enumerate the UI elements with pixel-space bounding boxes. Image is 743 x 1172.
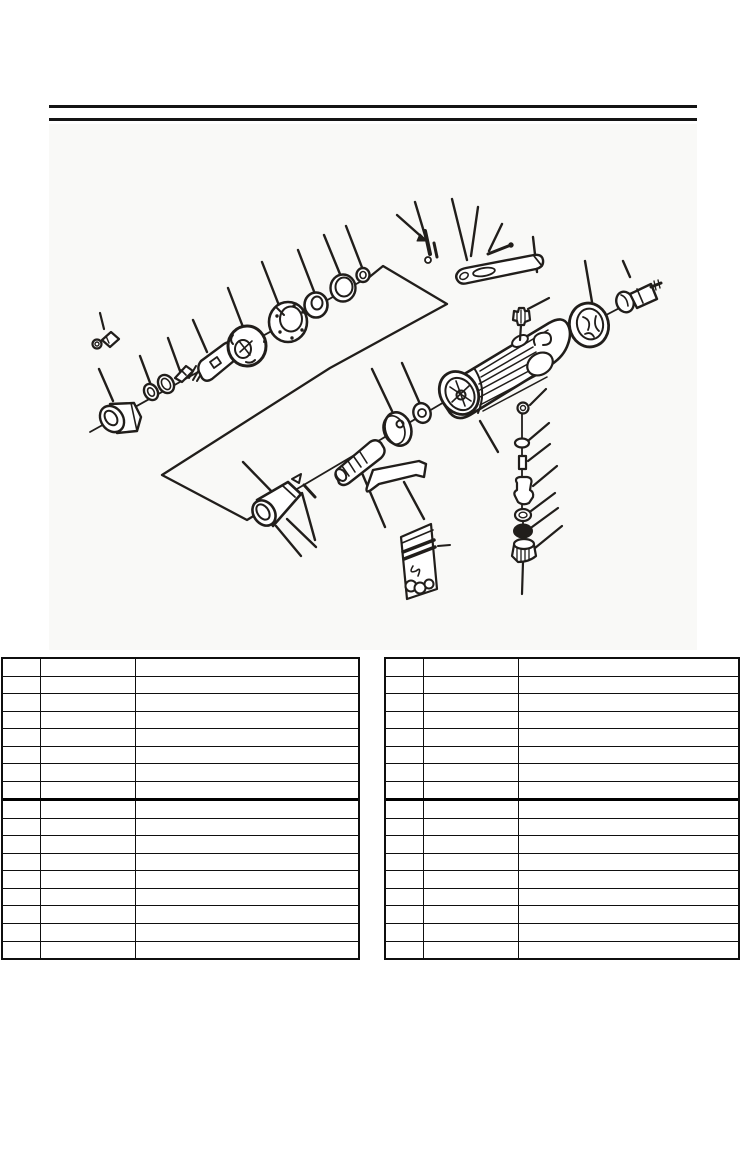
table-cell <box>519 677 738 694</box>
table-cell <box>136 729 358 746</box>
table-cell <box>41 801 136 818</box>
valve-stack <box>512 389 562 594</box>
table-cell <box>136 659 358 676</box>
parts-bag <box>401 524 450 599</box>
kick-pin <box>292 474 315 540</box>
table-row <box>3 712 358 730</box>
table-cell <box>41 924 136 941</box>
table-cell <box>386 764 424 781</box>
table-cell <box>41 747 136 764</box>
table-cell <box>386 747 424 764</box>
table-cell <box>519 854 738 871</box>
table-row <box>386 694 738 712</box>
table-cell <box>136 924 358 941</box>
table-row <box>386 819 738 837</box>
table-cell <box>519 871 738 888</box>
motor-cylinder <box>262 262 307 342</box>
table-row <box>386 871 738 889</box>
table-cell <box>424 819 519 836</box>
table-cell <box>386 836 424 853</box>
table-row <box>3 836 358 854</box>
table-cell <box>3 942 41 959</box>
table-row <box>3 871 358 889</box>
throttle-valve <box>514 466 557 504</box>
table-row <box>386 677 738 695</box>
table-cell <box>424 889 519 906</box>
table-cell <box>424 906 519 923</box>
table-cell <box>519 694 738 711</box>
table-row <box>3 854 358 872</box>
table-row <box>3 889 358 907</box>
table-cell <box>519 924 738 941</box>
table-cell <box>386 854 424 871</box>
table-cell <box>386 729 424 746</box>
table-row <box>386 924 738 942</box>
rear-bearing-plate <box>565 261 612 351</box>
table-row <box>386 729 738 747</box>
table-cell <box>424 747 519 764</box>
rotor <box>228 288 266 366</box>
table-cell <box>41 889 136 906</box>
table-row <box>3 747 358 765</box>
table-cell <box>424 729 519 746</box>
table-cell <box>3 906 41 923</box>
table-cell <box>519 836 738 853</box>
table-row <box>3 677 358 695</box>
washer <box>324 235 356 302</box>
table-cell <box>41 677 136 694</box>
table-row <box>386 747 738 765</box>
table-cell <box>519 942 738 959</box>
table-cell <box>136 677 358 694</box>
table-cell <box>424 677 519 694</box>
table-cell <box>519 712 738 729</box>
table-row <box>386 906 738 924</box>
table-cell <box>136 764 358 781</box>
table-row <box>386 889 738 907</box>
table-row <box>3 801 358 819</box>
table-cell <box>41 782 136 799</box>
table-row <box>386 854 738 872</box>
table-cell <box>424 801 519 818</box>
table-cell <box>519 729 738 746</box>
table-cell <box>386 924 424 941</box>
table-cell <box>136 712 358 729</box>
small-o-ring <box>346 226 370 282</box>
grease-fitting <box>93 313 120 349</box>
table-row <box>3 764 358 782</box>
table-cell <box>386 889 424 906</box>
table-cell <box>519 782 738 799</box>
table-cell <box>3 782 41 799</box>
wrench <box>456 255 543 284</box>
table-cell <box>136 836 358 853</box>
exploded-parts-diagram <box>0 0 743 1172</box>
table-cell <box>424 836 519 853</box>
table-cell <box>136 854 358 871</box>
table-cell <box>386 906 424 923</box>
table-row <box>3 906 358 924</box>
inlet-end-cap <box>613 261 661 315</box>
table-cell <box>424 942 519 959</box>
table-cell <box>3 871 41 888</box>
table-row <box>3 819 358 837</box>
table-row <box>386 764 738 782</box>
table-cell <box>424 764 519 781</box>
valve-stack-ring <box>518 389 547 414</box>
table-cell <box>386 677 424 694</box>
table-cell <box>3 764 41 781</box>
table-cell <box>41 729 136 746</box>
table-row <box>386 942 738 959</box>
parts-table-left <box>1 657 360 960</box>
table-cell <box>386 782 424 799</box>
table-cell <box>3 924 41 941</box>
table-cell <box>41 871 136 888</box>
table-row <box>3 729 358 747</box>
table-row <box>386 836 738 854</box>
table-cell <box>136 782 358 799</box>
table-cell <box>136 801 358 818</box>
table-cell <box>519 801 738 818</box>
table-cell <box>386 694 424 711</box>
table-cell <box>136 694 358 711</box>
table-cell <box>386 871 424 888</box>
table-cell <box>136 942 358 959</box>
table-cell <box>519 764 738 781</box>
motor-housing <box>431 319 570 452</box>
table-cell <box>3 854 41 871</box>
table-cell <box>3 694 41 711</box>
table-cell <box>519 747 738 764</box>
governor-ring <box>402 363 433 425</box>
table-row <box>3 942 358 959</box>
table-cell <box>41 819 136 836</box>
table-cell <box>136 747 358 764</box>
valve-stack-washer <box>515 423 549 448</box>
table-cell <box>3 801 41 818</box>
table-row <box>3 659 358 677</box>
table-cell <box>424 659 519 676</box>
table-cell <box>519 889 738 906</box>
table-cell <box>424 694 519 711</box>
table-cell <box>136 889 358 906</box>
collet-nut <box>95 369 141 437</box>
table-row <box>3 782 358 802</box>
table-cell <box>136 906 358 923</box>
table-cell <box>3 747 41 764</box>
table-cell <box>424 871 519 888</box>
table-cell <box>3 819 41 836</box>
table-cell <box>386 712 424 729</box>
retaining-clips <box>425 231 437 263</box>
table-cell <box>41 906 136 923</box>
table-cell <box>424 712 519 729</box>
table-cell <box>424 782 519 799</box>
table-cell <box>41 836 136 853</box>
table-cell <box>136 819 358 836</box>
table-cell <box>136 871 358 888</box>
table-row <box>3 924 358 942</box>
table-cell <box>424 924 519 941</box>
table-cell <box>386 819 424 836</box>
table-cell <box>424 854 519 871</box>
table-row <box>386 659 738 677</box>
table-cell <box>41 659 136 676</box>
parts-table-right <box>384 657 740 960</box>
air-inlet-bushing <box>243 462 316 556</box>
table-cell <box>386 801 424 818</box>
table-row <box>3 694 358 712</box>
table-cell <box>3 677 41 694</box>
table-cell <box>41 694 136 711</box>
table-cell <box>386 659 424 676</box>
table-cell <box>3 712 41 729</box>
table-cell <box>519 819 738 836</box>
safety-lever <box>367 461 427 519</box>
table-cell <box>3 836 41 853</box>
table-cell <box>41 942 136 959</box>
table-cell <box>3 729 41 746</box>
table-cell <box>3 659 41 676</box>
table-cell <box>41 712 136 729</box>
table-row <box>386 782 738 802</box>
collet-cone <box>168 338 193 382</box>
table-cell <box>41 854 136 871</box>
table-cell <box>519 659 738 676</box>
table-cell <box>386 942 424 959</box>
table-cell <box>519 906 738 923</box>
table-row <box>386 801 738 819</box>
table-cell <box>41 764 136 781</box>
table-cell <box>3 889 41 906</box>
table-row <box>386 712 738 730</box>
